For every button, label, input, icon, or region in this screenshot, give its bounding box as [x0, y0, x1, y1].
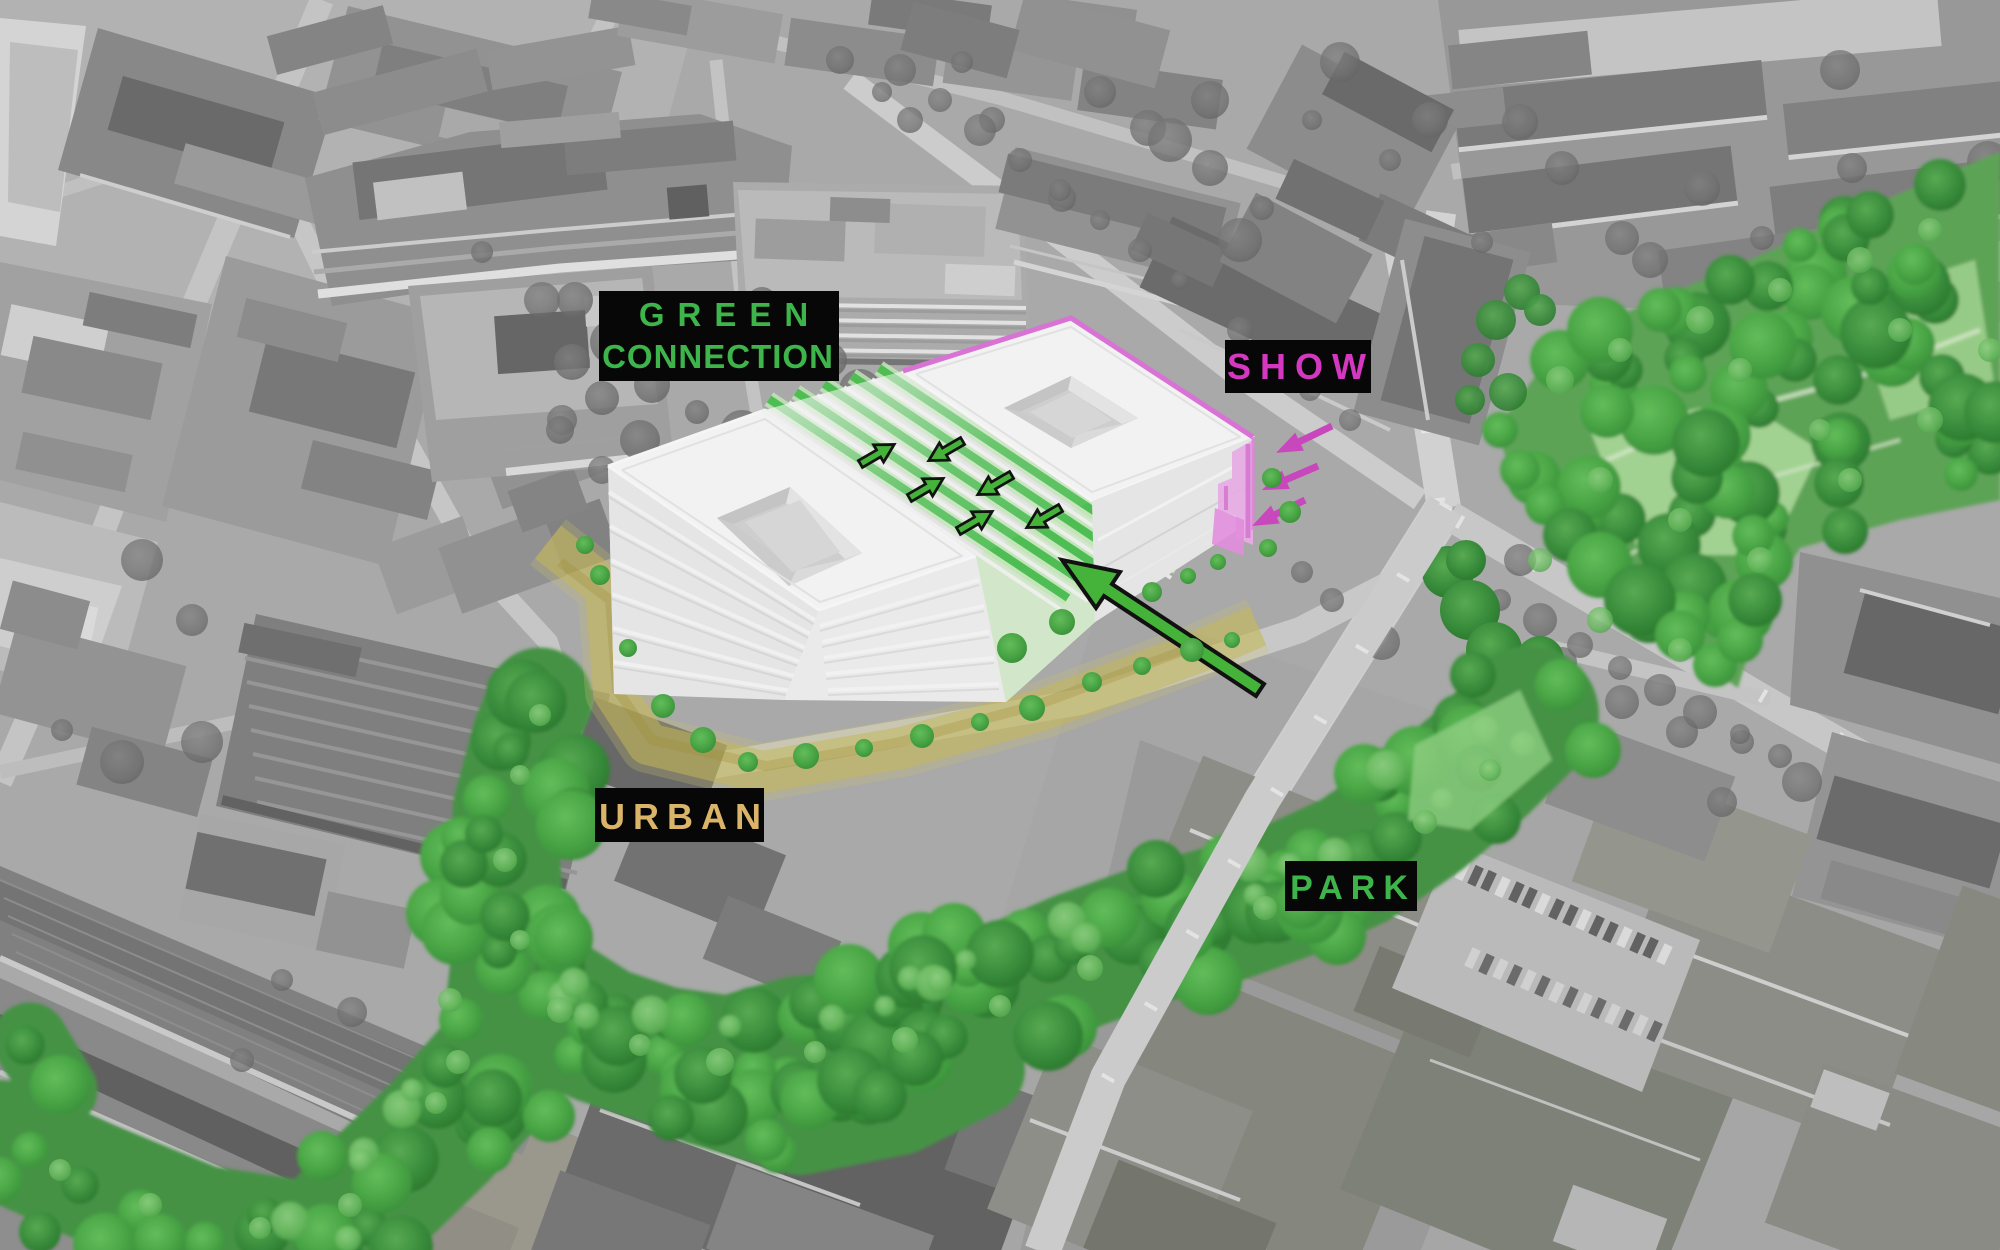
svg-text:PARK: PARK — [1290, 869, 1416, 907]
svg-text:SHOW: SHOW — [1227, 346, 1375, 387]
svg-text:CONNECTION: CONNECTION — [602, 338, 834, 375]
svg-text:URBAN: URBAN — [599, 796, 769, 837]
svg-text:GREEN: GREEN — [639, 296, 821, 333]
